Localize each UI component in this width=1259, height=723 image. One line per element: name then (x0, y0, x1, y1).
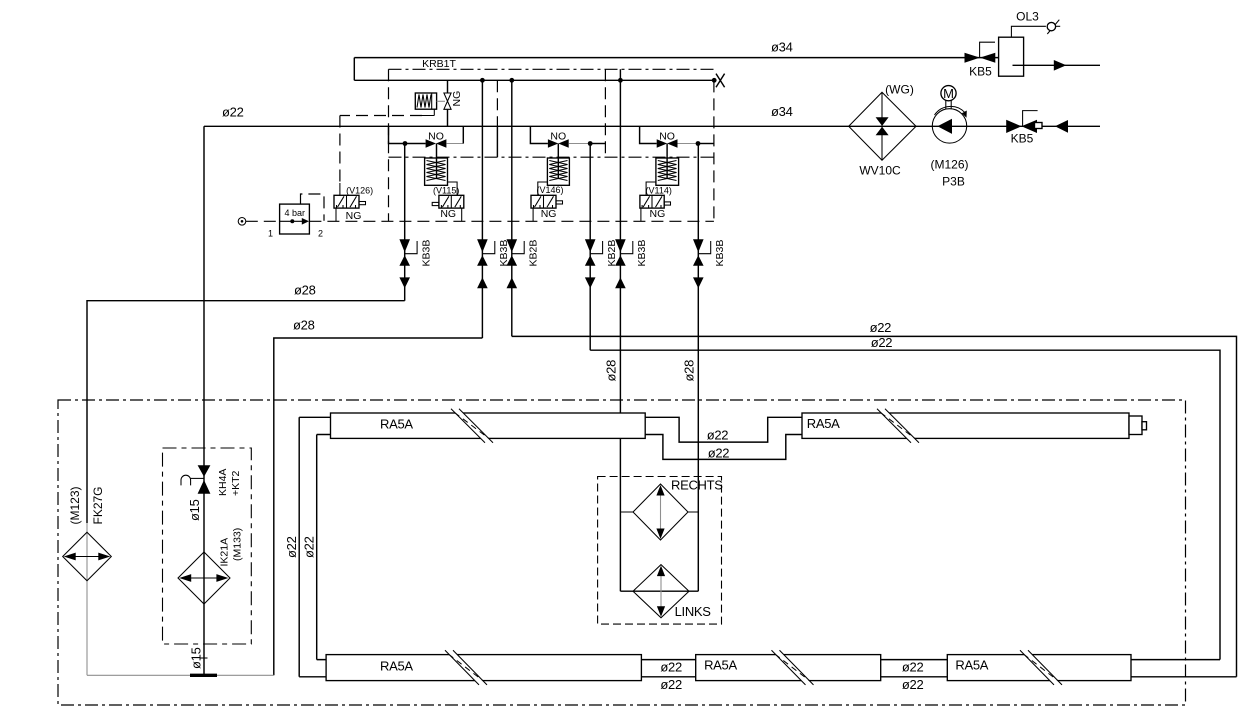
svg-text:ø34: ø34 (771, 104, 793, 119)
svg-text:ø22: ø22 (302, 536, 317, 558)
svg-text:ø22: ø22 (902, 660, 924, 675)
svg-text:4 bar: 4 bar (285, 208, 306, 218)
svg-text:M: M (943, 86, 954, 101)
svg-text:ø22: ø22 (870, 320, 892, 335)
svg-text:KB5: KB5 (1011, 132, 1034, 146)
svg-text:OL3: OL3 (1016, 10, 1039, 24)
svg-text:ø28: ø28 (682, 360, 697, 382)
svg-text:ø34: ø34 (771, 40, 793, 55)
svg-text:(M123): (M123) (68, 486, 82, 524)
svg-text:NO: NO (428, 131, 444, 143)
svg-text:ø22: ø22 (708, 446, 730, 461)
svg-text:NG: NG (541, 208, 557, 220)
svg-text:IK21A: IK21A (219, 538, 231, 567)
svg-text:KRB1T: KRB1T (422, 58, 456, 70)
svg-text:NG: NG (650, 208, 666, 220)
svg-text:ø28: ø28 (604, 360, 619, 382)
svg-text:NG: NG (440, 208, 456, 220)
svg-text:ø22: ø22 (660, 660, 682, 675)
svg-text:RA5A: RA5A (955, 658, 988, 673)
svg-text:NG: NG (451, 91, 463, 107)
svg-text:RA5A: RA5A (380, 659, 413, 674)
svg-text:LINKS: LINKS (675, 604, 712, 619)
svg-text:NO: NO (659, 131, 675, 143)
svg-text:P3B: P3B (942, 175, 965, 189)
svg-text:(V126): (V126) (346, 186, 373, 196)
svg-text:(M133): (M133) (232, 528, 244, 561)
svg-text:ø22: ø22 (902, 677, 924, 692)
svg-text:ø15: ø15 (187, 499, 202, 521)
svg-text:RA5A: RA5A (807, 416, 840, 431)
svg-text:ø22: ø22 (660, 677, 682, 692)
svg-text:WV10C: WV10C (859, 164, 901, 178)
svg-text:RA5A: RA5A (380, 417, 413, 432)
svg-text:KB3B: KB3B (421, 240, 433, 267)
svg-text:(M126): (M126) (930, 158, 968, 172)
svg-text:ø28: ø28 (294, 283, 316, 298)
svg-text:(V146): (V146) (536, 185, 563, 195)
svg-text:ø22: ø22 (871, 335, 893, 350)
svg-text:NG: NG (346, 210, 362, 222)
svg-text:ø22: ø22 (707, 428, 729, 443)
svg-text:RA5A: RA5A (704, 658, 737, 673)
svg-text:ø22: ø22 (222, 105, 244, 120)
svg-text:NO: NO (550, 131, 566, 143)
svg-text:(V115): (V115) (433, 186, 459, 196)
svg-text:KB5: KB5 (969, 65, 992, 79)
svg-text:(V114): (V114) (646, 186, 672, 196)
svg-text:KB2B: KB2B (606, 240, 618, 267)
svg-text:ø22: ø22 (284, 536, 299, 558)
svg-text:FK27G: FK27G (91, 486, 105, 524)
svg-text:RECHTS: RECHTS (671, 478, 723, 493)
svg-text:KH4A: KH4A (217, 469, 229, 496)
svg-text:KB3B: KB3B (636, 240, 648, 267)
svg-text:+KT2: +KT2 (230, 470, 242, 496)
svg-text:KB2B: KB2B (528, 240, 540, 267)
svg-text:KB3B: KB3B (714, 240, 726, 267)
svg-text:ø28: ø28 (293, 318, 315, 333)
svg-text:2: 2 (318, 229, 323, 239)
svg-text:1: 1 (268, 229, 273, 239)
svg-text:(WG): (WG) (885, 83, 914, 97)
